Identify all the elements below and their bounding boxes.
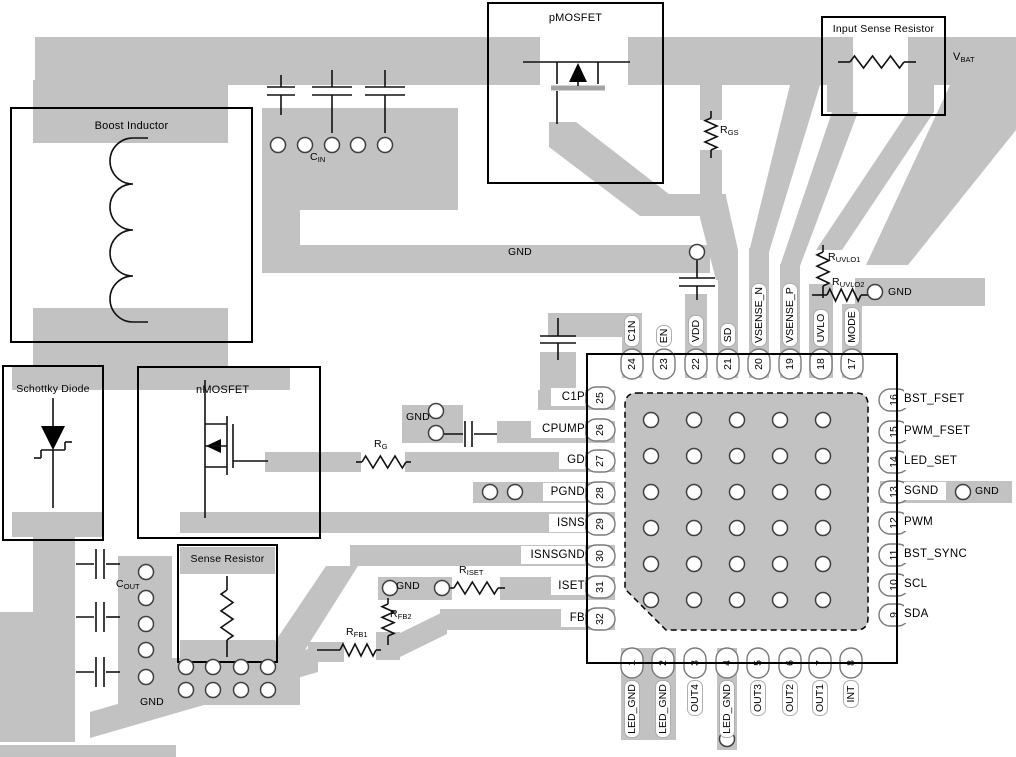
pin-28-number: 28 xyxy=(593,481,607,505)
rfb2-label: RFB2 xyxy=(390,608,412,623)
thermal-pad xyxy=(625,393,868,630)
cout-label: COUT xyxy=(116,578,140,593)
rg-label: RG xyxy=(374,438,388,453)
pin-label-isnsgnd: ISNSGND xyxy=(521,546,585,564)
pin-4-number: 4 xyxy=(720,651,734,675)
gnd-label-plane: GND xyxy=(508,246,532,259)
gnd-label-iset: GND xyxy=(396,580,420,593)
pin-31-number: 31 xyxy=(593,575,607,599)
pin-29-number: 29 xyxy=(593,512,607,536)
pin-label-uvlo: UVLO xyxy=(813,309,829,347)
schottky-triangle xyxy=(41,426,65,450)
riset-label: RISET xyxy=(459,564,483,579)
pin-32-number: 32 xyxy=(593,607,607,631)
pin-label-bst_fset: BST_FSET xyxy=(904,390,966,408)
pin-label-isns: ISNS xyxy=(549,514,585,532)
pin-label-sd: SD xyxy=(720,323,736,347)
nmosfet-title: nMOSFET xyxy=(196,384,249,397)
ruvlo2-label: RUVLO2 xyxy=(832,276,864,291)
pin-22-number: 22 xyxy=(689,352,703,376)
pin-label-gd: GD xyxy=(559,451,585,469)
pin-label-out2-6: OUT2 xyxy=(782,680,798,716)
inductor-symbol xyxy=(110,138,148,322)
pin-label-int-8: INT xyxy=(843,680,859,708)
sense-resistor-title: Sense Resistor xyxy=(178,553,277,566)
gnd-label-cout: GND xyxy=(140,696,164,709)
pin-label-out3-5: OUT3 xyxy=(750,680,766,716)
gnd-label-cpump: GND xyxy=(406,411,430,424)
gnd-label-sgnd: GND xyxy=(975,485,999,498)
pin-label-vsense_p: VSENSE_P xyxy=(782,283,798,347)
pin-label-mode: MODE xyxy=(844,307,860,347)
pin-label-sgnd: SGND xyxy=(904,482,946,500)
pin-label-iset: ISET xyxy=(551,577,585,595)
pin-2-number: 2 xyxy=(656,651,670,675)
pin-7-number: 7 xyxy=(813,651,827,675)
vbat-label: VBAT xyxy=(953,51,975,66)
pin-3-number: 3 xyxy=(688,651,702,675)
pin-label-en: EN xyxy=(656,325,672,347)
rgs-label: RGS xyxy=(720,124,739,139)
pin-20-number: 20 xyxy=(752,352,766,376)
pin-label-cpump: CPUMP xyxy=(531,420,585,438)
pin-8-number: 8 xyxy=(844,651,858,675)
pin-14-number: 14 xyxy=(887,450,901,474)
pin-label-vsense_n: VSENSE_N xyxy=(751,283,767,347)
rfb1-label: RFB1 xyxy=(346,626,368,641)
pin-27-number: 27 xyxy=(593,449,607,473)
pin-9-number: 9 xyxy=(887,603,901,627)
schottky-diode-title: Schottky Diode xyxy=(3,383,103,396)
pin-6-number: 6 xyxy=(783,651,797,675)
pin-17-number: 17 xyxy=(845,352,859,376)
pmosfet-title: pMOSFET xyxy=(488,12,663,25)
trace-layer xyxy=(0,0,1016,757)
pin-label-vdd: VDD xyxy=(688,315,704,347)
pin-label-led_set: LED_SET xyxy=(904,452,958,470)
gnd-label-uvlo: GND xyxy=(888,286,912,299)
pin-label-fb: FB xyxy=(561,609,585,627)
pin-19-number: 19 xyxy=(783,352,797,376)
pin-label-c1p: C1P xyxy=(551,388,585,406)
input-sense-resistor-title: Input Sense Resistor xyxy=(822,23,945,36)
pin-26-number: 26 xyxy=(593,418,607,442)
pin-label-sda: SDA xyxy=(904,605,934,623)
pin-18-number: 18 xyxy=(814,352,828,376)
boost-inductor-title: Boost Inductor xyxy=(11,120,252,133)
ruvlo1-label: RUVLO1 xyxy=(828,251,860,266)
boost-inductor-box xyxy=(11,108,252,342)
pin-15-number: 15 xyxy=(887,420,901,444)
cin-label: CIN xyxy=(310,151,325,166)
pin-label-out1-7: OUT1 xyxy=(812,680,828,716)
pin-24-number: 24 xyxy=(625,352,639,376)
pin-label-led_gnd-4: LED_GND xyxy=(719,680,735,738)
pin-label-led_gnd-1: LED_GND xyxy=(624,680,640,738)
pin-25-number: 25 xyxy=(593,386,607,410)
pin-12-number: 12 xyxy=(887,511,901,535)
pin-5-number: 5 xyxy=(751,651,765,675)
pin-1-number: 1 xyxy=(625,651,639,675)
pin-label-led_gnd-2: LED_GND xyxy=(655,680,671,738)
pin-label-scl: SCL xyxy=(904,575,932,593)
pin-23-number: 23 xyxy=(657,352,671,376)
pcb-layout-diagram: Boost Inductor pMOSFET Input Sense Resis… xyxy=(0,0,1016,757)
pin-16-number: 16 xyxy=(887,388,901,412)
pin-label-pgnd: PGND xyxy=(543,483,585,501)
pin-label-c1n: C1N xyxy=(624,315,640,347)
pin-11-number: 11 xyxy=(887,543,901,567)
pin-30-number: 30 xyxy=(593,544,607,568)
pin-13-number: 13 xyxy=(887,480,901,504)
pin-label-out4-3: OUT4 xyxy=(687,680,703,716)
pin-label-bst_sync: BST_SYNC xyxy=(904,545,968,563)
pin-10-number: 10 xyxy=(887,573,901,597)
pin-21-number: 21 xyxy=(721,352,735,376)
pin-label-pwm_fset: PWM_FSET xyxy=(904,422,972,440)
pin-label-pwm: PWM xyxy=(904,513,938,531)
